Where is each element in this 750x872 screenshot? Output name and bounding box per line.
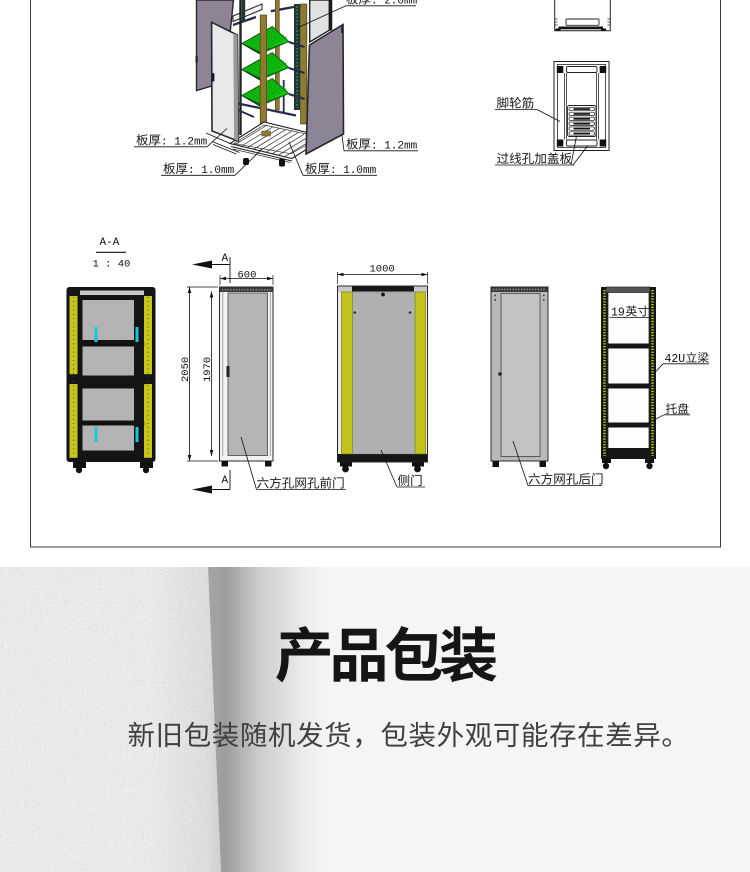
svg-text:1970: 1970 <box>202 357 214 382</box>
svg-text:A-A: A-A <box>100 237 120 249</box>
svg-text:A: A <box>222 253 229 265</box>
svg-text:2050: 2050 <box>180 357 192 382</box>
svg-text:1000: 1000 <box>370 264 395 276</box>
svg-text:A: A <box>222 475 229 487</box>
svg-text:600: 600 <box>238 270 257 282</box>
svg-text:: 2.0mm: : 2.0mm <box>371 0 418 8</box>
svg-text:1 : 40: 1 : 40 <box>93 259 131 271</box>
